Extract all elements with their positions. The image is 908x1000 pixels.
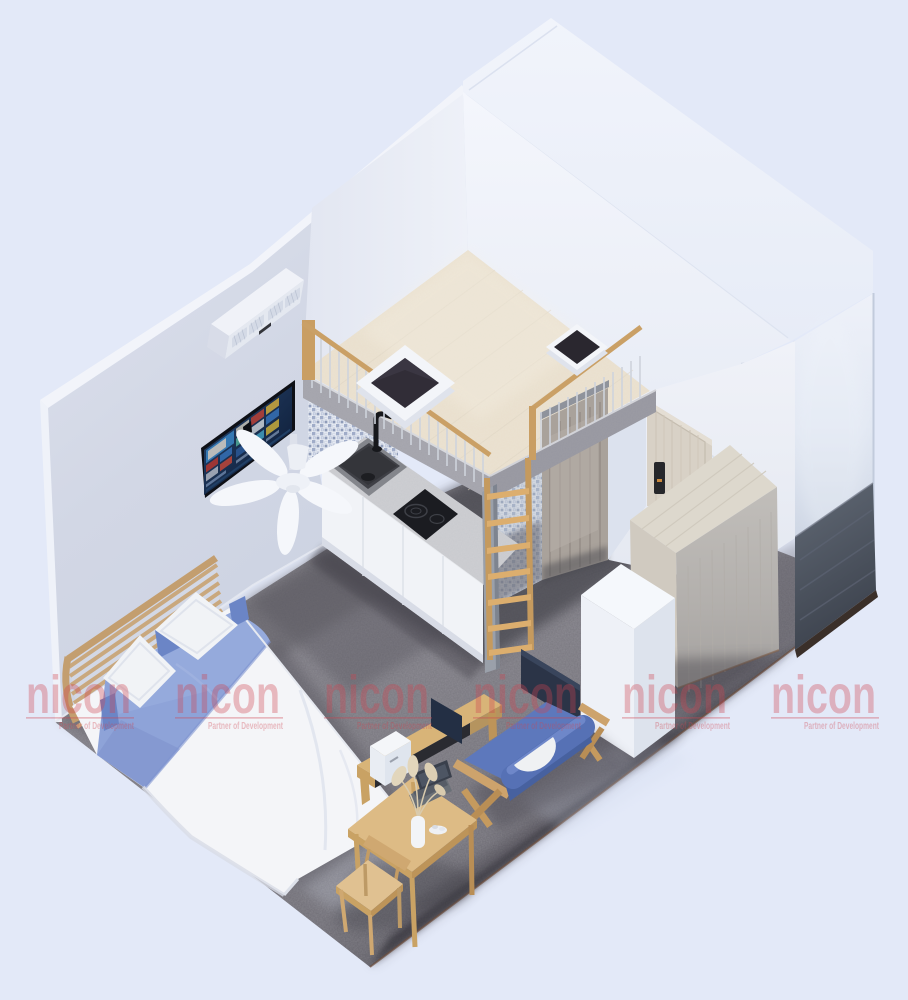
svg-text:nicon: nicon bbox=[622, 665, 727, 725]
svg-text:nicon: nicon bbox=[771, 665, 876, 725]
svg-text:Partner of Development: Partner of Development bbox=[655, 721, 730, 732]
svg-text:Partner of Development: Partner of Development bbox=[59, 721, 134, 732]
svg-text:Partner of Development: Partner of Development bbox=[804, 721, 879, 732]
svg-text:Partner of Development: Partner of Development bbox=[357, 721, 432, 732]
svg-text:Partner of Development: Partner of Development bbox=[506, 721, 581, 732]
svg-text:nicon: nicon bbox=[473, 665, 578, 725]
svg-text:Partner of Development: Partner of Development bbox=[208, 721, 283, 732]
svg-text:nicon: nicon bbox=[26, 665, 131, 725]
svg-text:nicon: nicon bbox=[175, 665, 280, 725]
svg-text:nicon: nicon bbox=[324, 665, 429, 725]
